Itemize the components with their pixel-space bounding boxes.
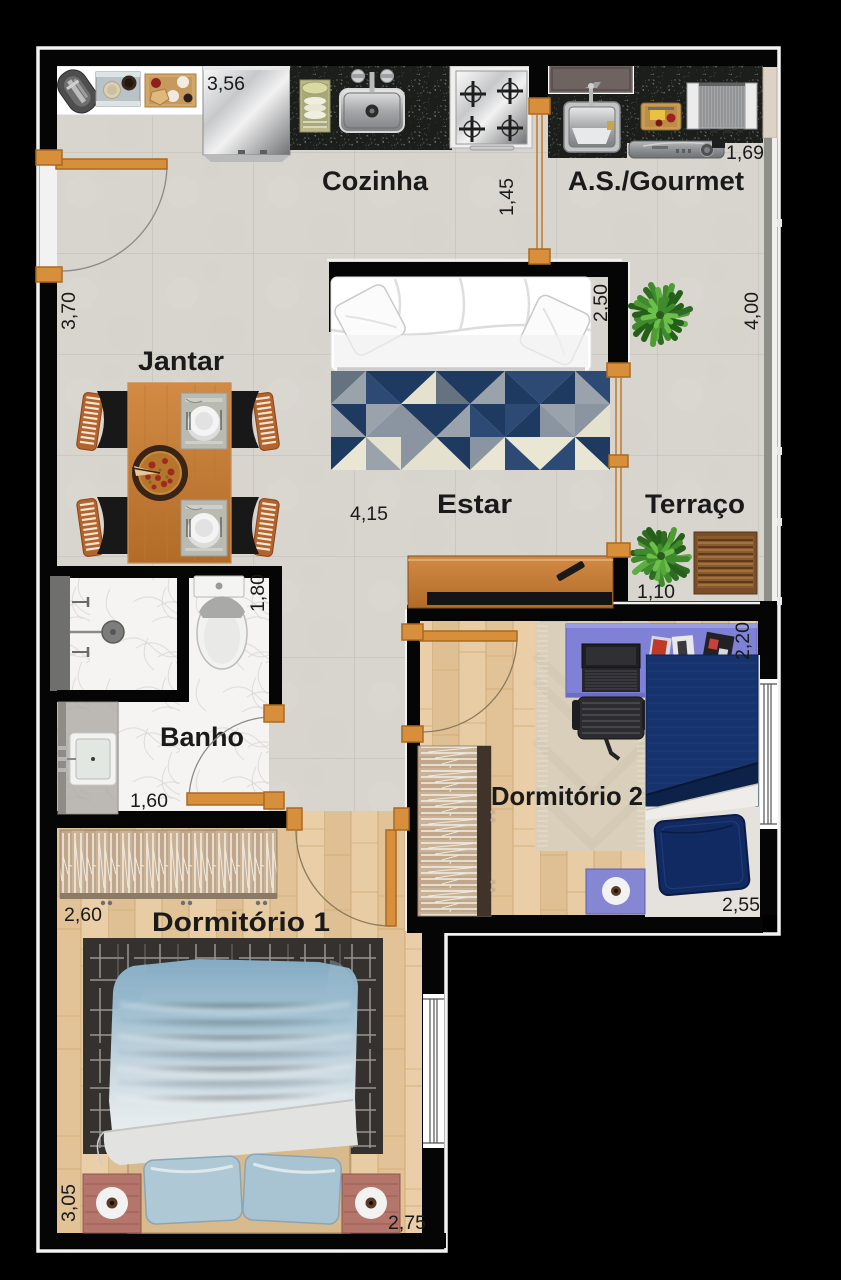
svg-text:3,05: 3,05 — [58, 1184, 80, 1222]
svg-text:1,60: 1,60 — [130, 790, 168, 812]
svg-text:1,69: 1,69 — [726, 142, 764, 164]
svg-text:2,50: 2,50 — [590, 284, 612, 322]
svg-text:Terraço: Terraço — [645, 489, 745, 519]
svg-text:Banho: Banho — [160, 722, 244, 752]
svg-text:A.S./Gourmet: A.S./Gourmet — [568, 166, 744, 196]
svg-text:1,10: 1,10 — [637, 581, 675, 603]
svg-text:Jantar: Jantar — [138, 346, 225, 376]
svg-text:2,75: 2,75 — [388, 1212, 426, 1234]
svg-text:4,00: 4,00 — [741, 292, 763, 330]
svg-text:Cozinha: Cozinha — [322, 166, 429, 196]
svg-text:1,45: 1,45 — [496, 178, 518, 216]
svg-text:2,55: 2,55 — [722, 894, 760, 916]
svg-text:Dormitório 1: Dormitório 1 — [152, 907, 330, 937]
svg-text:4,15: 4,15 — [350, 503, 388, 525]
svg-text:Estar: Estar — [437, 489, 513, 519]
svg-text:3,56: 3,56 — [207, 73, 245, 95]
svg-text:Dormitório 2: Dormitório 2 — [491, 781, 643, 811]
svg-text:3,70: 3,70 — [58, 292, 80, 330]
svg-text:1,80: 1,80 — [247, 574, 269, 612]
svg-text:2,60: 2,60 — [64, 904, 102, 926]
svg-text:2,20: 2,20 — [732, 622, 754, 660]
